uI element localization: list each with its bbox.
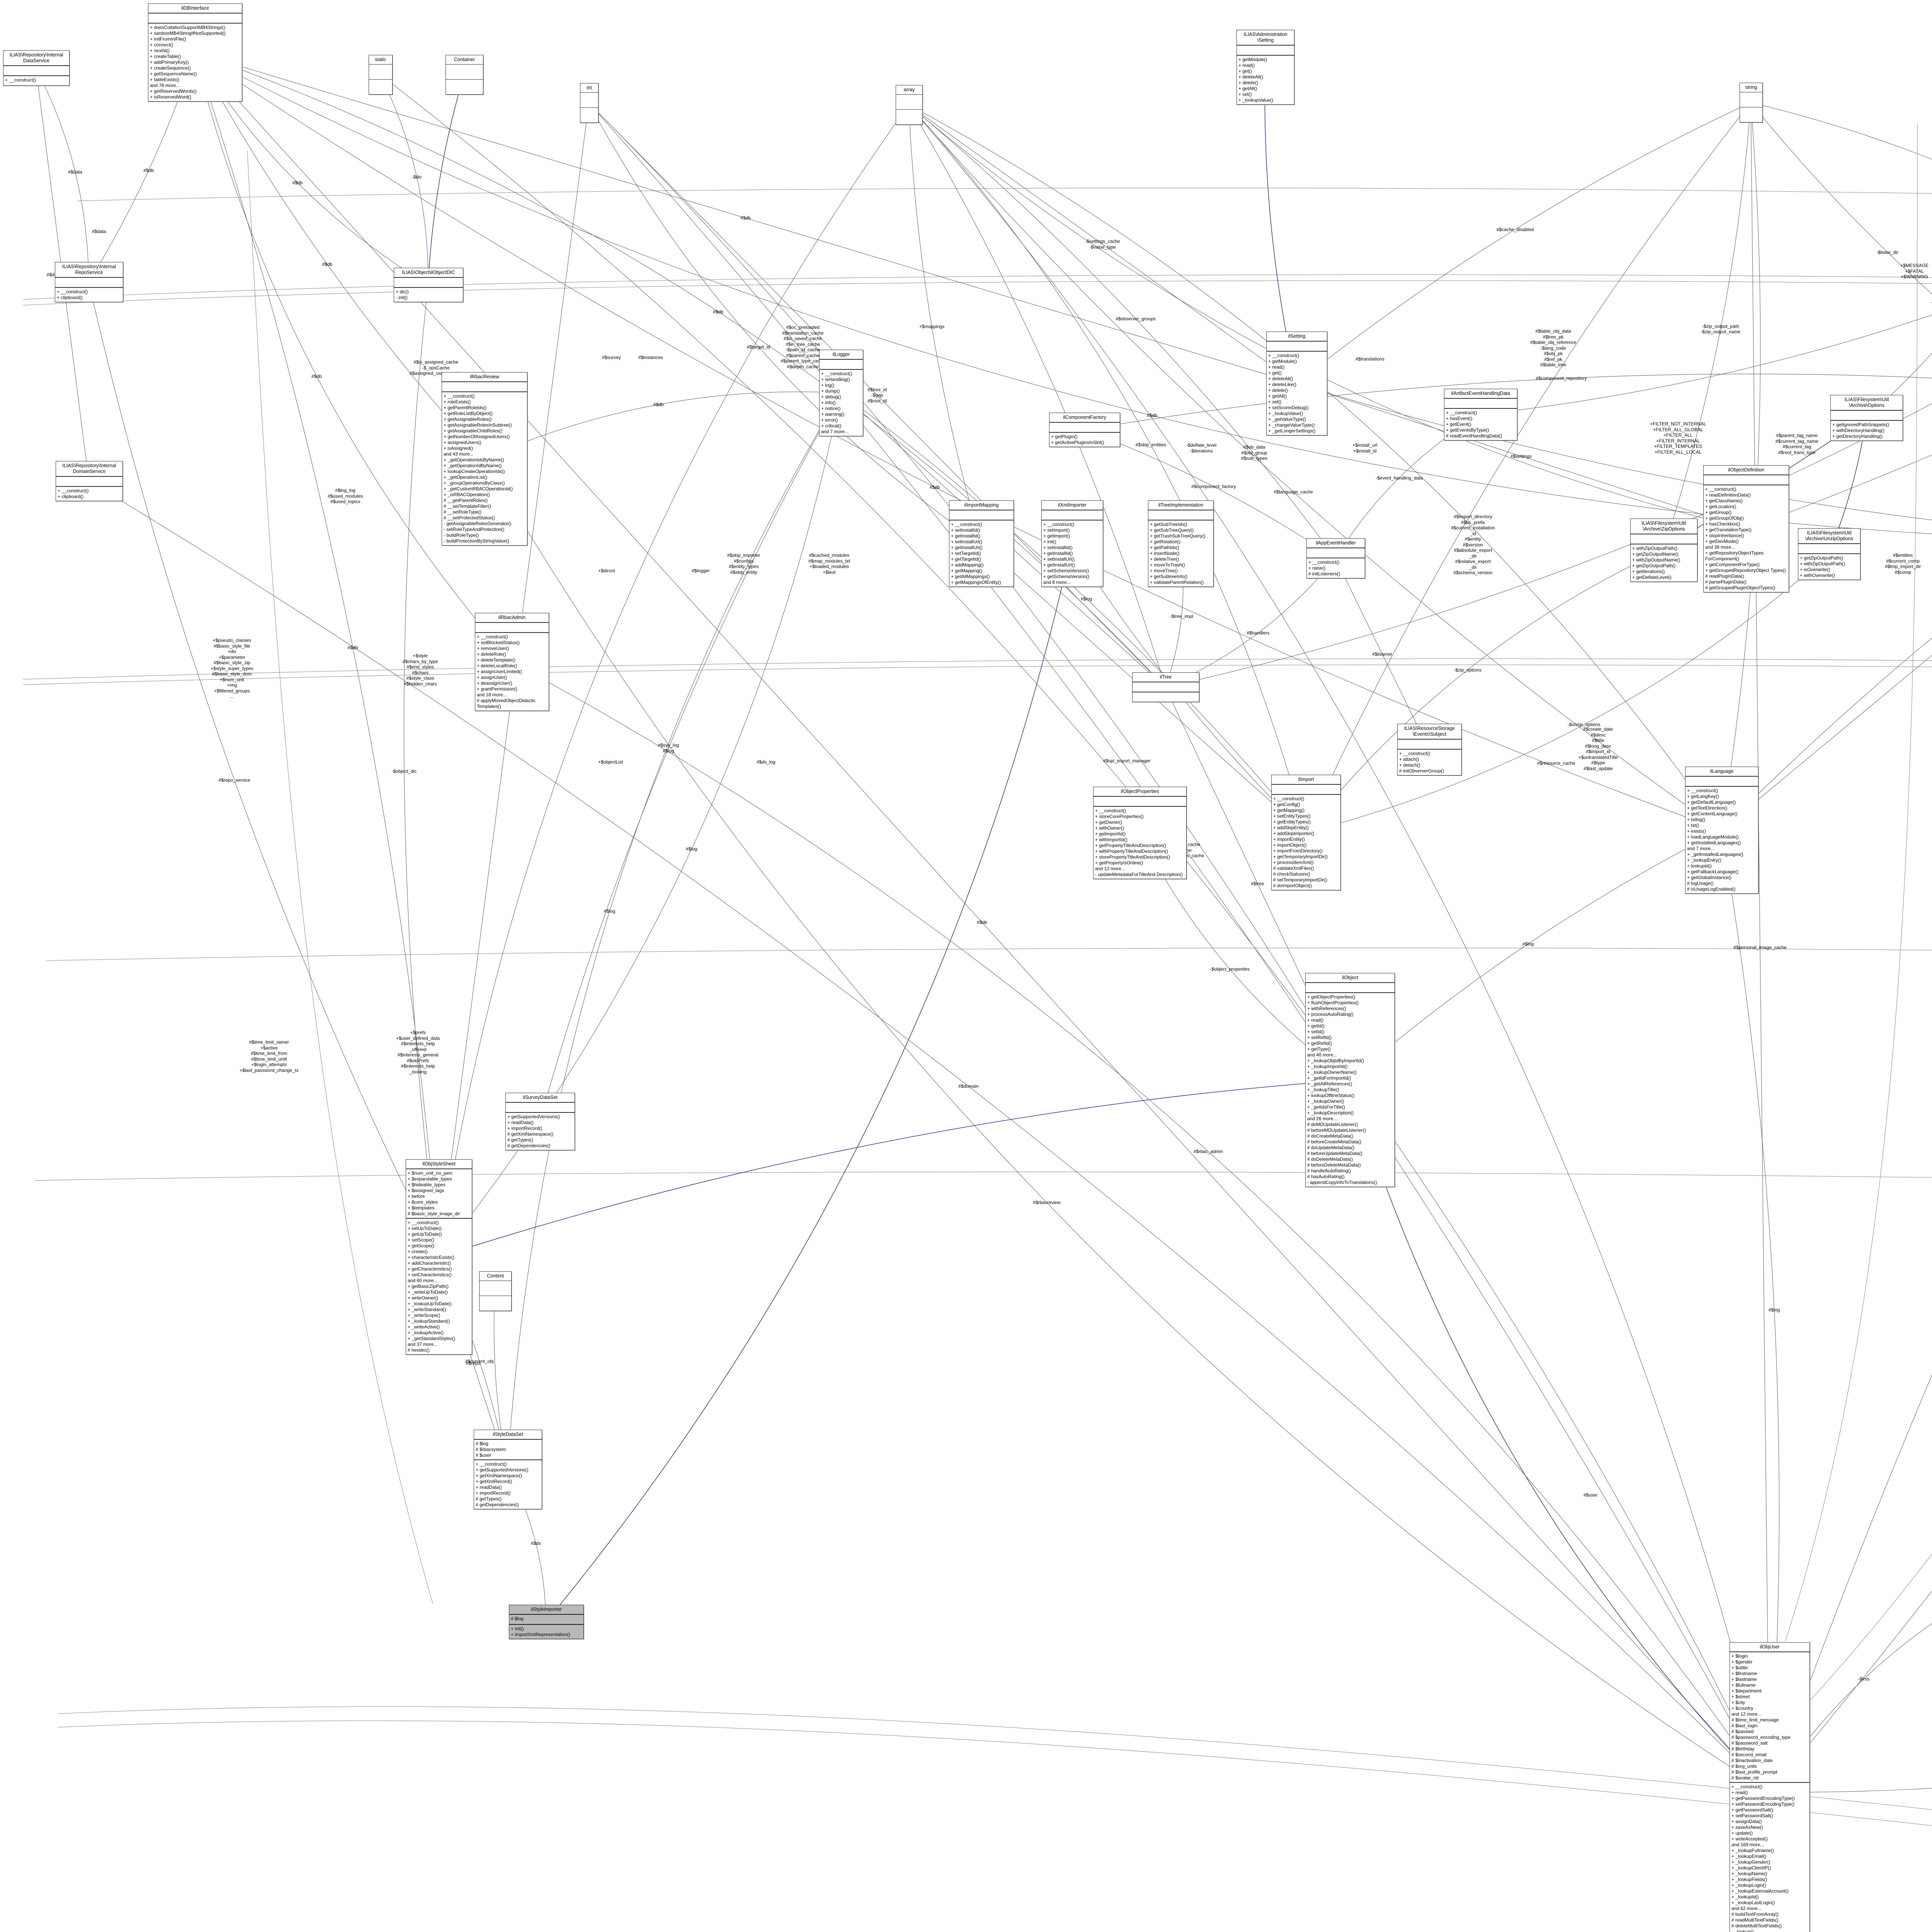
uml-method-row: + deleteLike() bbox=[1268, 382, 1325, 388]
edge-label: #$listener bbox=[1372, 651, 1392, 657]
class-methods: + getIgnoredPathSnippets()+ withDirector… bbox=[1831, 421, 1903, 440]
uml-method-row: + _lookupActive() bbox=[408, 1330, 470, 1336]
uml-method-row: + readData() bbox=[507, 1120, 573, 1126]
uml-attr-row: # $second_email bbox=[1731, 1752, 1808, 1758]
uml-method-row: + getDevMode() bbox=[1705, 539, 1787, 544]
uml-method-row: + setRefId() bbox=[1307, 1035, 1393, 1041]
edge-label: #$observer_groups bbox=[1116, 316, 1156, 322]
uml-method-row: + doesCollationSupportMB4Strings() bbox=[150, 25, 240, 31]
uml-method-row: + getMappingsOfEntity() bbox=[951, 580, 1012, 585]
uml-method-row: and 169 more... bbox=[1731, 1842, 1808, 1848]
uml-method-row: + isAssigned() bbox=[444, 446, 526, 451]
edge-internal_data_service-internal_repo_service bbox=[36, 68, 89, 282]
class-box-illanguage[interactable]: ilLanguage + __construct()+ getLangKey()… bbox=[1685, 767, 1759, 894]
uml-method-row: # initListeners() bbox=[1308, 571, 1363, 577]
uml-method-row: + importFromDirectory() bbox=[1273, 848, 1339, 854]
edge-t_array-ilimport bbox=[909, 105, 1306, 833]
class-box-ilobject[interactable]: ilObject + getObjectProperties()+ flushO… bbox=[1305, 973, 1395, 1187]
uml-method-row: + __construct() bbox=[1446, 410, 1515, 416]
class-name: ilImport bbox=[1272, 775, 1340, 785]
class-name: ILIAS\Administration \Setting bbox=[1237, 30, 1294, 46]
edge-label: -$event_handling_data bbox=[1376, 475, 1423, 481]
uml-method-row: + setScope() bbox=[408, 1237, 470, 1243]
uml-method-row: + moveTree() bbox=[1150, 568, 1212, 574]
class-box-ilrbacreview[interactable]: ilRbacReview + __construct()+ roleExists… bbox=[442, 372, 527, 546]
uml-method-row: + _lookupFields() bbox=[1731, 1877, 1808, 1883]
uml-method-row: + _lookupFullname() bbox=[1731, 1848, 1808, 1854]
class-name: ilXmlImporter bbox=[1042, 501, 1103, 510]
uml-method-row: + setBlockedStatus() bbox=[477, 640, 547, 646]
uml-method-row: + _lookupValue() bbox=[1238, 97, 1293, 103]
uml-method-row: + getPasswordSalt() bbox=[1731, 1807, 1808, 1813]
uml-method-row: + _lookupOwnerName() bbox=[1307, 1070, 1393, 1075]
uml-method-row: + removeUser() bbox=[477, 646, 547, 651]
uml-method-row: + roleExists() bbox=[444, 399, 526, 405]
uml-method-row: + importRecord() bbox=[507, 1126, 573, 1131]
uml-method-row: + getSupportedVersions() bbox=[476, 1467, 540, 1473]
uml-method-row: + getScope() bbox=[408, 1243, 470, 1249]
uml-method-row: + getContentLanguage() bbox=[1687, 811, 1757, 817]
uml-method-row: # __setTemplateFilter() bbox=[444, 503, 526, 509]
class-box-ildbinterface[interactable]: ilDBInterface + doesCollationSupportMB4S… bbox=[148, 3, 242, 102]
float-label: #$create_date #$desc #$title #$long_desc… bbox=[1578, 726, 1618, 771]
class-box-ilartifactevents[interactable]: ilArtifactEventHandlingData + __construc… bbox=[1444, 389, 1517, 440]
uml-method-row: + getGroupedRepositoryObject Types() bbox=[1705, 568, 1787, 573]
edge-illogger-ilstyledataset bbox=[508, 393, 841, 1469]
class-name: ilObject bbox=[1306, 973, 1395, 983]
uml-method-row: + getModule() bbox=[1238, 57, 1293, 63]
uml-method-row: + create() bbox=[408, 1249, 470, 1255]
uml-method-row: + getSupportedVersions() bbox=[507, 1114, 573, 1120]
class-box-iltreeimplementation[interactable]: ilTreeImplementation + getSubTreeIds()+ … bbox=[1148, 500, 1214, 587]
class-box-internal_repo_service[interactable]: ILIAS\Repository\Internal RepoService + … bbox=[55, 262, 123, 302]
class-box-unzipoptions[interactable]: ILIAS\Filesystem\Util \Archive\UnzipOpti… bbox=[1798, 528, 1861, 580]
uml-method-row: + _lookupValue() bbox=[1268, 411, 1325, 417]
edge-label: #$handlers bbox=[1247, 630, 1269, 636]
class-box-zipoptions[interactable]: ILIAS\Filesystem\Util \Archive\ZipOption… bbox=[1630, 519, 1697, 582]
float-label: #$instances bbox=[638, 355, 663, 361]
edge-t_string-ilimport bbox=[1306, 103, 1751, 833]
class-box-ilimport[interactable]: ilImport + __construct()+ getConfig()+ g… bbox=[1271, 775, 1341, 890]
class-box-ilobjectproperties[interactable]: ilObjectProperties + __construct()+ stor… bbox=[1093, 787, 1187, 879]
uml-method-row: + withZipOutputName() bbox=[1632, 557, 1696, 563]
uml-method-row: + flushObjectProperties() bbox=[1307, 1000, 1393, 1006]
uml-method-row: # hasAutoRating() bbox=[1307, 1174, 1393, 1180]
uml-method-row: + addCharacteristic() bbox=[408, 1260, 470, 1266]
uml-method-row: + getPasswordEncodingType() bbox=[1731, 1796, 1808, 1801]
uml-method-row: + stopInheritance() bbox=[1705, 533, 1787, 539]
uml-attr-row: # $org_units bbox=[1731, 1764, 1808, 1769]
class-attributes bbox=[1740, 92, 1762, 107]
edge-label: #$data bbox=[68, 169, 82, 175]
uml-method-row: # parsePluginData() bbox=[1705, 579, 1787, 585]
uml-method-row: and 78 more... bbox=[150, 83, 240, 88]
uml-method-row: + insertNode() bbox=[1150, 551, 1212, 556]
uml-method-row: + getRoleListByObject() bbox=[444, 411, 526, 417]
uml-method-row: + getPlugin() bbox=[1051, 434, 1118, 440]
float-label: +$pseudo_classes #$basic_style_file +div… bbox=[211, 638, 253, 699]
class-attributes bbox=[475, 623, 549, 633]
uml-method-row: - init() bbox=[396, 295, 461, 301]
class-attributes bbox=[3, 66, 69, 76]
uml-method-row: - updateMetadataForTitleAnd Description(… bbox=[1095, 872, 1185, 878]
uml-method-row: + importXmlRepresentation() bbox=[511, 1632, 582, 1638]
class-attributes bbox=[56, 477, 122, 487]
class-box-ilrbacadmin[interactable]: ilRbacAdmin + __construct()+ setBlockedS… bbox=[475, 613, 549, 711]
class-methods: + doesCollationSupportMB4Strings()+ sani… bbox=[148, 24, 242, 101]
uml-method-row: + getInstallId() bbox=[1043, 551, 1101, 556]
class-methods: + getObjectProperties()+ flushObjectProp… bbox=[1306, 993, 1395, 1187]
uml-method-row: + error() bbox=[821, 417, 861, 423]
class-methods bbox=[1133, 692, 1199, 702]
uml-method-row: + getImport() bbox=[1043, 533, 1101, 539]
uml-method-row: # beforeMDUpdateListener() bbox=[1307, 1128, 1393, 1133]
uml-method-row: + getType() bbox=[1307, 1046, 1393, 1052]
uml-method-row: + getInstallId() bbox=[951, 533, 1012, 539]
uml-method-row: + getTrashSubTreeQuery() bbox=[1150, 533, 1212, 539]
uml-method-row: + getPropertyTitleAndDescription() bbox=[1095, 843, 1185, 849]
edge-label: #$rbacreview bbox=[1033, 1200, 1060, 1206]
class-box-eventsubject[interactable]: ILIAS\ResourceStorage \Events\Subject + … bbox=[1397, 724, 1462, 776]
class-methods: + __construct()+ isHandling()+ log()+ du… bbox=[820, 370, 863, 436]
class-box-t_int[interactable]: int bbox=[580, 83, 599, 123]
uml-method-row: + _lookupExternalAccount() bbox=[1731, 1888, 1808, 1894]
class-methods: + getSupportedVersions()+ readData()+ im… bbox=[506, 1113, 575, 1150]
uml-attr-row: + $gender bbox=[1731, 1659, 1808, 1665]
uml-method-row: + deleteTree() bbox=[1150, 556, 1212, 562]
class-methods: + __construct()+ getSupportedVersions()+… bbox=[474, 1460, 542, 1509]
uml-method-row: # validateXmlFiles() bbox=[1273, 866, 1339, 871]
uml-method-row: + getZipOutputName() bbox=[1632, 551, 1696, 557]
uml-method-row: + grantPermission() bbox=[477, 686, 547, 692]
class-attributes bbox=[580, 93, 598, 108]
uml-method-row: + withZipOutputPath() bbox=[1800, 561, 1859, 567]
class-attributes bbox=[1267, 342, 1327, 352]
class-box-ilimportmapping[interactable]: ilImportMapping + __construct()+ setInst… bbox=[949, 500, 1014, 587]
uml-method-row: + getEventsByType() bbox=[1446, 427, 1515, 433]
uml-method-row: + deleteAll() bbox=[1268, 376, 1325, 382]
class-box-ilobjstylesheet[interactable]: ilObjStyleSheet + $num_unit_no_perc+ $ex… bbox=[406, 1159, 472, 1355]
class-methods bbox=[896, 110, 922, 124]
uml-method-row: # getDependencies() bbox=[507, 1143, 573, 1149]
class-methods bbox=[1740, 107, 1762, 122]
uml-method-row: + _getLongerSettings() bbox=[1268, 428, 1325, 434]
edge-label: -$settings_cache -$value_type bbox=[1085, 239, 1120, 250]
uml-method-row: + __construct() bbox=[821, 371, 861, 377]
edge-label: #$db bbox=[1147, 413, 1157, 418]
class-box-ilobjectdic[interactable]: ILIAS\Object\ilObjectDIC + dic()- init() bbox=[394, 268, 463, 302]
uml-method-row: + _writeUpToDate() bbox=[408, 1289, 470, 1295]
class-box-ilappeventhandler[interactable]: ilAppEventHandler + __construct()+ raise… bbox=[1306, 538, 1365, 578]
class-attributes bbox=[1685, 777, 1758, 787]
class-name: ilAppEventHandler bbox=[1307, 539, 1365, 548]
edge-label: #$language_cache bbox=[1274, 489, 1313, 495]
class-name: static bbox=[369, 55, 392, 65]
uml-method-row: + _getIdForImportId() bbox=[1307, 1075, 1393, 1081]
uml-method-row: - buildRoleType() bbox=[444, 532, 526, 538]
uml-method-row: + nextId() bbox=[150, 48, 240, 54]
uml-method-row: # readMultiTextFields() bbox=[1731, 1917, 1808, 1923]
edge-illanguage-ilobject bbox=[1350, 830, 1721, 1080]
uml-method-row: + setInstallUrl() bbox=[1043, 556, 1101, 562]
class-box-t_content[interactable]: Content bbox=[479, 1271, 512, 1311]
edges-layer bbox=[0, 0, 1932, 1932]
class-box-ilstyleimporter[interactable]: ilStyleImporter # $log + init()+ importX… bbox=[509, 1605, 584, 1639]
uml-method-row: + read() bbox=[1307, 1017, 1393, 1023]
uml-method-row: + getAssignableRoles() bbox=[444, 417, 526, 422]
class-name: ilObjectDefinition bbox=[1704, 466, 1789, 475]
class-name: Container bbox=[446, 55, 483, 65]
uml-method-row: + setPasswordSalt() bbox=[1731, 1813, 1808, 1819]
class-attributes bbox=[1398, 740, 1461, 750]
float-label: #$resource_cache bbox=[1537, 760, 1575, 766]
class-name: ilDBInterface bbox=[148, 4, 242, 14]
class-box-ilstyledataset[interactable]: ilStyleDataSet # $log# $rbacsystem# $use… bbox=[474, 1430, 542, 1509]
uml-method-row: + getTextDirection() bbox=[1687, 805, 1757, 811]
uml-method-row: + __construct() bbox=[476, 1461, 540, 1467]
float-label: +$install_url +$install_id bbox=[1352, 442, 1377, 454]
uml-method-row: + getXmlRecord() bbox=[476, 1479, 540, 1485]
edge-illogger-ilsurveydataset bbox=[540, 393, 841, 1122]
uml-method-row: + _getValueType() bbox=[1268, 417, 1325, 422]
edge-label: -$object_dic bbox=[392, 769, 417, 774]
uml-method-row: + getLangKey() bbox=[1687, 794, 1757, 799]
uml-method-row: + getRelation() bbox=[1150, 539, 1212, 545]
uml-method-row: + setInstallId() bbox=[1043, 545, 1101, 551]
uml-method-row: + getParentRoleIds() bbox=[444, 405, 526, 411]
class-box-archiveoptions[interactable]: ILIAS\Filesystem\Util \Archive\Options +… bbox=[1830, 395, 1903, 441]
uml-method-row: + getOwner() bbox=[1095, 820, 1185, 825]
uml-method-row: + _lookupId() bbox=[1731, 1894, 1808, 1900]
uml-method-row: + getBasicZipPath() bbox=[408, 1284, 470, 1289]
class-box-t_array[interactable]: array bbox=[896, 85, 923, 125]
uml-method-row: + __construct() bbox=[408, 1220, 470, 1226]
edge-label: #$lng bbox=[1522, 941, 1534, 947]
float-label: #$cached_modules #$map_modules_txt +$loa… bbox=[808, 553, 850, 575]
uml-method-row: + getSubTreeQuery() bbox=[1150, 527, 1212, 533]
class-box-ilobjectdefinition[interactable]: ilObjectDefinition + __construct()+ read… bbox=[1703, 465, 1789, 592]
uml-method-row: + _lookupDescription() bbox=[1307, 1110, 1393, 1116]
class-box-ilsetting[interactable]: ilSetting + __construct()+ getModule()+ … bbox=[1266, 332, 1327, 435]
uml-method-row: # setTemporaryImportDir() bbox=[1273, 877, 1339, 883]
uml-method-row: + _getStandardStyles() bbox=[408, 1336, 470, 1342]
uml-method-row: + getInstallUrl() bbox=[951, 545, 1012, 551]
class-attributes bbox=[1237, 46, 1294, 56]
class-attributes bbox=[820, 360, 863, 370]
uml-method-row: + setInstallUrl() bbox=[951, 539, 1012, 545]
class-attributes bbox=[394, 278, 463, 288]
class-box-ilobjuser[interactable]: ilObjUser + $login+ $gender+ $utitle+ $f… bbox=[1730, 1642, 1810, 1932]
float-label: #$lng_log #$used_modules #$used_topics bbox=[328, 488, 363, 505]
class-attributes bbox=[949, 510, 1014, 520]
uml-method-row: + withOverwrite() bbox=[1800, 573, 1859, 578]
class-attributes bbox=[1094, 797, 1186, 807]
uml-method-row: # doMDUpdateListener() bbox=[1307, 1122, 1393, 1128]
class-methods bbox=[480, 1296, 511, 1311]
uml-method-row: + saveAsNew() bbox=[1731, 1825, 1808, 1830]
float-label: #$ob_data #$obj_group #$sub_types bbox=[1241, 444, 1267, 461]
class-box-t_container[interactable]: Container bbox=[446, 55, 483, 95]
edge-label: -$zip_options bbox=[1454, 667, 1481, 673]
uml-attr-row: + $city bbox=[1731, 1700, 1808, 1706]
class-name: ilArtifactEventHandlingData bbox=[1444, 389, 1517, 399]
edge-t_int-ilobject bbox=[589, 103, 1350, 1080]
class-name: ilSetting bbox=[1267, 332, 1327, 342]
class-methods bbox=[580, 108, 598, 122]
uml-method-row: + getInstalledLanguages() bbox=[1687, 840, 1757, 846]
uml-method-row: + getPropertyIsOnline() bbox=[1095, 860, 1185, 866]
bus-curve bbox=[77, 188, 1932, 216]
bus-curve bbox=[23, 281, 1932, 305]
uml-attr-row: + $lastname bbox=[1731, 1677, 1808, 1682]
uml-method-row: # deleteMultiTextFields() bbox=[1731, 1923, 1808, 1929]
uml-method-row: # hexdec() bbox=[408, 1347, 470, 1353]
uml-method-row: # checkStatuses() bbox=[1273, 871, 1339, 877]
bus-curve bbox=[23, 275, 1932, 299]
uml-method-row: + assignedUsers() bbox=[444, 440, 526, 446]
uml-method-row: + getSubTreeIds() bbox=[1150, 522, 1212, 527]
uml-method-row: + read() bbox=[1238, 63, 1293, 68]
uml-method-row: + withOwner() bbox=[1095, 825, 1185, 831]
class-box-ilcomponentfactory[interactable]: ilComponentFactory + getPlugin()+ getAct… bbox=[1049, 413, 1120, 447]
class-box-adminsetting[interactable]: ILIAS\Administration \Setting + getModul… bbox=[1236, 30, 1294, 105]
uml-method-row: + processItemXml() bbox=[1273, 860, 1339, 866]
float-label: #$entities #$current_comp #$tmp_import_d… bbox=[1885, 553, 1921, 575]
class-methods: + withZipOutputPath()+ getZipOutputName(… bbox=[1631, 544, 1697, 582]
uml-attr-row: + $firstname bbox=[1731, 1671, 1808, 1677]
uml-method-row: # __setProtectedStatus() bbox=[444, 515, 526, 521]
uml-method-row: + importEntity() bbox=[1273, 837, 1339, 842]
float-label: #$skip_importer #$configs #$entity_types… bbox=[727, 553, 760, 575]
uml-method-row: # beforeCreateMetaData() bbox=[1307, 1139, 1393, 1145]
uml-method-row: + _lookupEmail() bbox=[1731, 1854, 1808, 1859]
class-box-internal_data_service[interactable]: ILIAS\Repository\Internal DataService + … bbox=[3, 50, 70, 86]
float-label: #$survey bbox=[602, 355, 621, 361]
uml-method-row: # beforeUpdateMetaData() bbox=[1307, 1151, 1393, 1156]
class-attributes bbox=[148, 14, 242, 24]
uml-method-row: + getDefaultLanguage() bbox=[1687, 799, 1757, 805]
uml-method-row: + read() bbox=[1731, 1790, 1808, 1796]
uml-method-row: + withReferences() bbox=[1307, 1006, 1393, 1012]
class-attributes bbox=[1307, 548, 1365, 558]
bus-curve bbox=[58, 1721, 1932, 1926]
class-attributes bbox=[1272, 785, 1340, 795]
class-box-illogger[interactable]: ilLogger + __construct()+ isHandling()+ … bbox=[819, 350, 863, 436]
uml-method-row: + delete() bbox=[1268, 388, 1325, 393]
uml-method-row: + getIterations() bbox=[1632, 569, 1696, 575]
uml-method-row: + getModule() bbox=[1268, 359, 1325, 364]
uml-attr-row: + $department bbox=[1731, 1688, 1808, 1694]
edge-ilerrorhandling-illanguage bbox=[1721, 378, 1932, 830]
uml-method-row: + createTable() bbox=[150, 54, 240, 60]
class-methods: + __construct()+ clipboard() bbox=[56, 487, 122, 501]
edge-label: #$skip_entities bbox=[1136, 442, 1166, 448]
uml-method-row: + lookupId() bbox=[1687, 863, 1757, 869]
class-attributes bbox=[369, 65, 392, 80]
uml-attr-row: # $last_profile_prompt bbox=[1731, 1769, 1808, 1775]
uml-method-row: + _lookupClientIP() bbox=[1731, 1865, 1808, 1871]
class-box-t_static[interactable]: static bbox=[369, 55, 393, 95]
uml-method-row: + withImportId() bbox=[1095, 837, 1185, 843]
uml-method-row: + getTemporaryImportDir() bbox=[1273, 854, 1339, 860]
edge-label: #$db bbox=[653, 402, 664, 408]
uml-method-row: + info() bbox=[821, 400, 861, 406]
class-attributes bbox=[446, 65, 483, 80]
uml-method-row: + getSubtreeInfo() bbox=[1150, 574, 1212, 580]
uml-method-row: # doCreateMetaData() bbox=[1307, 1133, 1393, 1139]
class-box-t_string[interactable]: string bbox=[1740, 83, 1763, 122]
uml-method-row: + getNumberOfAssignedUsers() bbox=[444, 434, 526, 440]
float-label: +$MESSAGE +$FATAL +$WARNING bbox=[1900, 263, 1929, 280]
class-attributes bbox=[1148, 510, 1213, 520]
class-methods: + __construct()+ attach()+ detach()# ini… bbox=[1398, 750, 1461, 775]
uml-method-row: + _lookupLastLogin() bbox=[1731, 1900, 1808, 1906]
uml-method-row: + _lookupImportId() bbox=[1307, 1064, 1393, 1070]
class-attributes bbox=[1831, 411, 1903, 421]
uml-method-row: # readEventHandlingData() bbox=[1446, 433, 1515, 439]
uml-attr-row: # $time_limit_message bbox=[1731, 1717, 1808, 1723]
class-methods: + __construct()+ setUpToDate()+ getUpToD… bbox=[406, 1219, 472, 1354]
uml-method-row: + readData() bbox=[476, 1485, 540, 1490]
uml-method-row: and 18 more... bbox=[477, 692, 547, 698]
class-box-ilsurveydataset[interactable]: ilSurveyDataSet + getSupportedVersions()… bbox=[505, 1093, 575, 1150]
uml-method-row: + getObjectProperties() bbox=[1307, 994, 1393, 1000]
uml-method-row: + dic() bbox=[396, 289, 461, 295]
uml-method-row: # getTypes() bbox=[507, 1137, 573, 1143]
uml-method-row: # doImportObject() bbox=[1273, 883, 1339, 889]
uml-method-row: + getTargetId() bbox=[951, 556, 1012, 562]
class-methods: + __construct()+ readDefinitionData()+ g… bbox=[1704, 485, 1789, 592]
class-methods: + __construct()+ getConfig()+ getMapping… bbox=[1272, 795, 1340, 890]
class-name: ILIAS\Filesystem\Util \Archive\Options bbox=[1831, 395, 1903, 411]
class-name: ilRbacAdmin bbox=[475, 613, 549, 623]
uml-attr-row: + $login bbox=[1731, 1653, 1808, 1659]
uml-method-row: + processAutoRating() bbox=[1307, 1012, 1393, 1017]
class-box-ilxmlimporter[interactable]: ilXmlImporter + __construct()+ setImport… bbox=[1041, 500, 1103, 587]
uml-method-row: + getIgnoredPathSnippets() bbox=[1832, 422, 1901, 428]
uml-method-row: + _lookupName() bbox=[1731, 1871, 1808, 1877]
uml-method-row: + addPrimaryKey() bbox=[150, 60, 240, 65]
class-methods: + __construct()+ getLangKey()+ getDefaul… bbox=[1685, 787, 1758, 893]
uml-attr-row: + $num_unit_no_perc bbox=[408, 1170, 470, 1176]
uml-method-row: - getAssignableRolesGenerator() bbox=[444, 521, 526, 527]
edge-t_bool-ilobjuser bbox=[1769, 78, 1932, 1793]
uml-method-row: + getPathIds() bbox=[1150, 545, 1212, 551]
uml-method-row: + setId() bbox=[1307, 1029, 1393, 1035]
edge-zipoptions-ilimport bbox=[1306, 550, 1663, 833]
class-name: ilSurveyDataSet bbox=[506, 1093, 575, 1103]
uml-method-row: + _lookupObjIdByImportId() bbox=[1307, 1058, 1393, 1064]
float-label: #$logger bbox=[692, 568, 710, 574]
uml-method-row: + loadLanguageModule() bbox=[1687, 834, 1757, 840]
float-label: #$time_limit_owner +$active #$time_limit… bbox=[240, 1039, 298, 1073]
class-box-iltree[interactable]: ilTree bbox=[1132, 672, 1199, 702]
edge-label: #$db bbox=[930, 485, 940, 490]
uml-method-row: + getGroupOfObj() bbox=[1705, 515, 1787, 521]
uml-method-row: + setEntityTypes() bbox=[1273, 813, 1339, 819]
uml-method-row: + _lookupEntry() bbox=[1687, 857, 1757, 863]
uml-method-row: + __construct() bbox=[951, 522, 1012, 527]
uml-method-row: + connect() bbox=[150, 42, 240, 48]
edge-label: #$lng bbox=[1769, 1307, 1780, 1313]
float-label: #$oc_preloaded #$translation_cache #$is_… bbox=[781, 325, 825, 369]
uml-method-row: - buildProtectionByStringValue() bbox=[444, 538, 526, 544]
uml-method-row: + critical() bbox=[821, 423, 861, 429]
class-attributes: # $log bbox=[509, 1615, 583, 1625]
uml-method-row: + characteristicExists() bbox=[408, 1255, 470, 1260]
class-box-internal_domain_service[interactable]: ILIAS\Repository\Internal DomainService … bbox=[56, 461, 123, 501]
class-name: array bbox=[896, 85, 922, 95]
